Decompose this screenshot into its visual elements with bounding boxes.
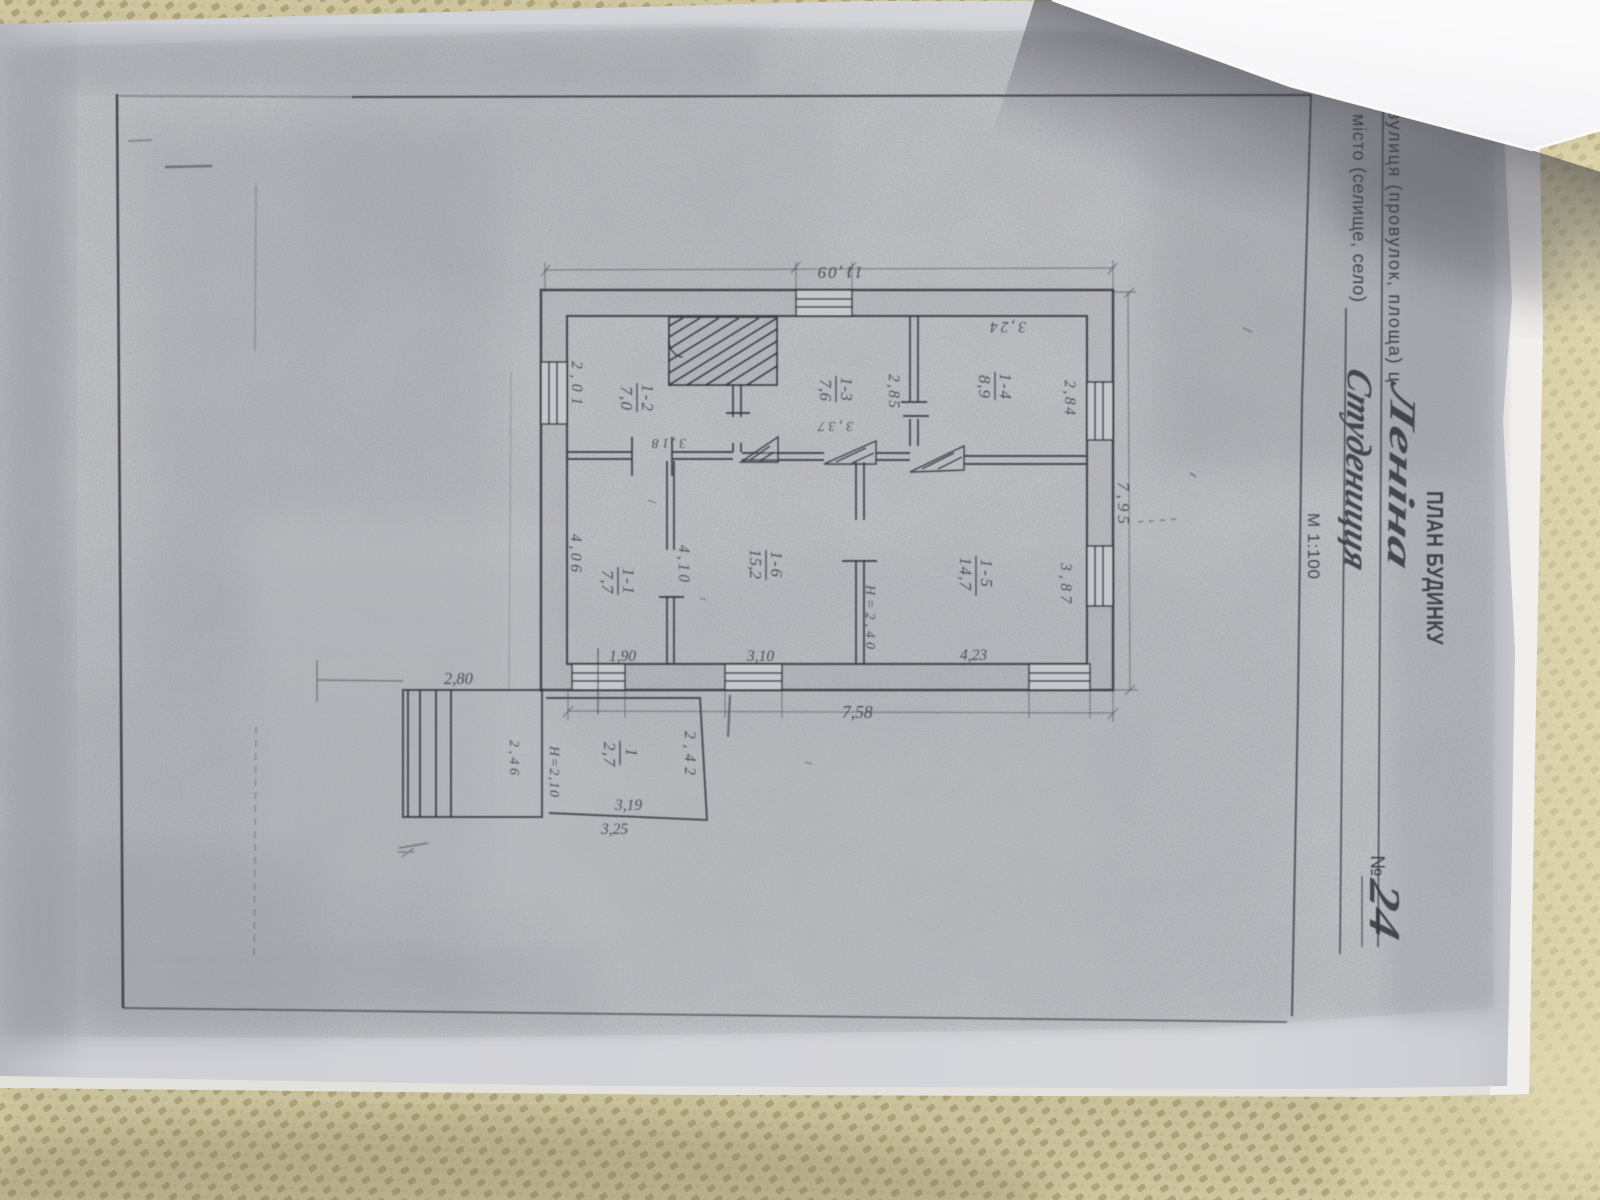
svg-text:1-6: 1-6 bbox=[767, 551, 786, 578]
svg-text:2,7: 2,7 bbox=[600, 742, 619, 768]
svg-text:4,06: 4,06 bbox=[567, 534, 584, 572]
svg-text:1-1: 1-1 bbox=[619, 568, 638, 594]
svg-text:1-2: 1-2 bbox=[638, 384, 657, 412]
svg-text:1-5: 1-5 bbox=[977, 559, 996, 587]
svg-text:3,10: 3,10 bbox=[746, 648, 774, 665]
svg-text:1,90: 1,90 bbox=[609, 648, 636, 665]
svg-text:3,37: 3,37 bbox=[817, 419, 854, 434]
svg-text:11,09: 11,09 bbox=[818, 263, 864, 282]
svg-text:Леніна: Леніна bbox=[1379, 376, 1423, 575]
svg-text:8,9: 8,9 bbox=[975, 375, 994, 399]
svg-text:2,85: 2,85 bbox=[885, 374, 902, 408]
svg-text:Студеницця: Студеницця bbox=[1337, 363, 1380, 577]
svg-text:3,24: 3,24 bbox=[990, 318, 1027, 335]
svg-text:7,58: 7,58 bbox=[842, 702, 873, 722]
svg-text:7,95: 7,95 bbox=[1114, 482, 1133, 524]
svg-text:2,80: 2,80 bbox=[444, 669, 474, 688]
svg-text:3,87: 3,87 bbox=[1057, 562, 1074, 604]
svg-text:Н=2,10: Н=2,10 bbox=[546, 745, 561, 797]
svg-text:7,0: 7,0 bbox=[617, 386, 636, 411]
svg-text:4,10: 4,10 bbox=[675, 545, 692, 582]
svg-text:4,23: 4,23 bbox=[960, 647, 987, 664]
svg-text:М 1:100: М 1:100 bbox=[1304, 513, 1323, 579]
svg-text:2,46: 2,46 bbox=[506, 740, 521, 775]
svg-text:14,7: 14,7 bbox=[956, 557, 975, 592]
svg-text:ПЛАН БУДИНКУ: ПЛАН БУДИНКУ bbox=[1422, 491, 1448, 645]
svg-text:2,42: 2,42 bbox=[681, 731, 698, 775]
svg-text:№: № bbox=[1366, 855, 1388, 876]
svg-text:3,25: 3,25 bbox=[600, 821, 628, 838]
svg-text:1-3: 1-3 bbox=[837, 377, 856, 401]
svg-text:7,6: 7,6 bbox=[816, 379, 835, 402]
svg-text:1-4: 1-4 bbox=[996, 373, 1015, 400]
svg-text:7,7: 7,7 bbox=[598, 570, 617, 595]
svg-text:2,01: 2,01 bbox=[568, 361, 585, 405]
svg-text:3,18: 3,18 bbox=[652, 436, 687, 451]
svg-text:1: 1 bbox=[622, 748, 641, 757]
svg-text:15,2: 15,2 bbox=[746, 549, 765, 580]
svg-text:2,84: 2,84 bbox=[1061, 380, 1078, 415]
svg-text:3,19: 3,19 bbox=[614, 797, 642, 814]
